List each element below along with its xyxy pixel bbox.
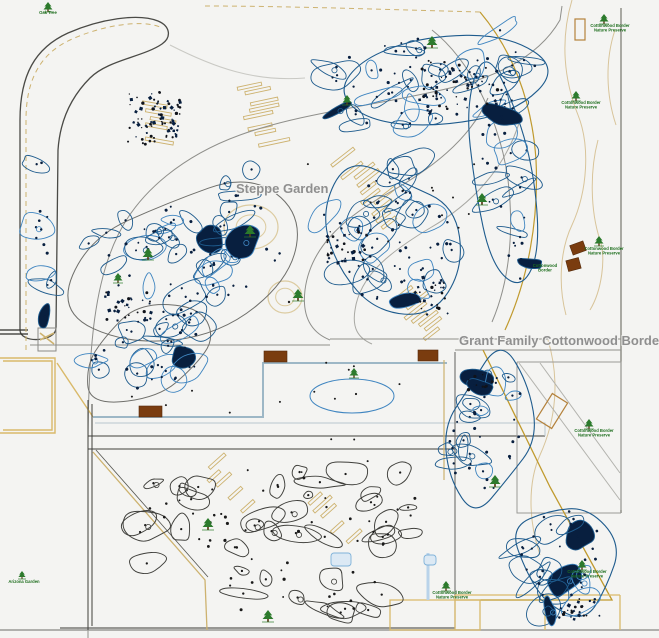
- garden-plan-map[interactable]: Oak TreeCottonwood BorderNature Preserve…: [0, 0, 659, 638]
- label-grant-family-cottonwood-border: Grant Family Cottonwood Border: [459, 333, 659, 348]
- mini-plant-label: Cottonwood BorderNature Preserve: [584, 246, 624, 256]
- mini-plant-label: Cottonwood BorderNature Preserve: [432, 590, 472, 600]
- mini-plant-label: Oak Tree: [39, 10, 57, 15]
- bench: [264, 351, 287, 362]
- bench: [418, 350, 438, 361]
- bench: [139, 406, 162, 417]
- mini-plant-label: Cottonwood BorderNature Preserve: [590, 23, 630, 33]
- mini-plant-label: Cottonwood BorderNature Preserve: [567, 569, 607, 579]
- site-plan-canvas: Oak TreeCottonwood BorderNature Preserve…: [0, 0, 659, 638]
- mini-plant-label: Arizona Garden: [8, 579, 40, 584]
- map-background: [0, 0, 659, 638]
- mini-plant-label: Cottonwood BorderNature Preserve: [574, 428, 614, 438]
- mini-plant-label: Cottonwood BorderNature Preserve: [561, 100, 601, 110]
- label-steppe-garden: Steppe Garden: [236, 181, 329, 196]
